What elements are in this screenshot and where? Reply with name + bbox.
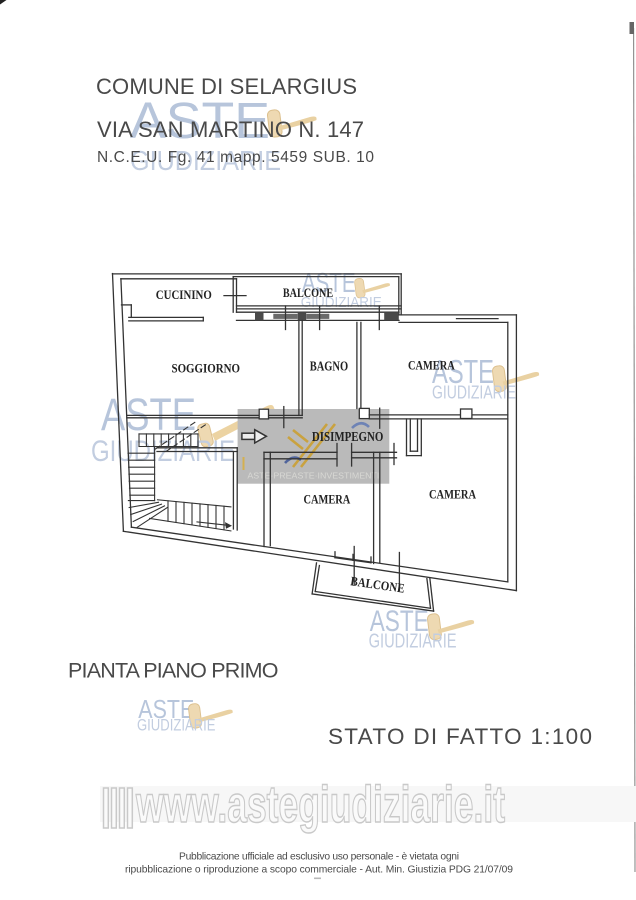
svg-text:STATO DI FATTO 1:100: STATO DI FATTO 1:100 xyxy=(328,724,592,749)
svg-text:GIUDIZIARIE: GIUDIZIARIE xyxy=(369,629,457,652)
svg-text:CAMERA: CAMERA xyxy=(408,358,455,373)
svg-text:ASTE·PREASTE·INVESTIMENTI: ASTE·PREASTE·INVESTIMENTI xyxy=(247,471,379,481)
svg-text:COMUNE DI SELARGIUS: COMUNE DI SELARGIUS xyxy=(96,74,357,99)
svg-text:GIUDIZIARIE: GIUDIZIARIE xyxy=(137,717,216,735)
svg-text:SOGGIORNO: SOGGIORNO xyxy=(172,360,241,375)
svg-text:GIUDIZIARIE: GIUDIZIARIE xyxy=(432,382,516,403)
svg-text:BALCONE: BALCONE xyxy=(350,573,406,596)
svg-text:Pubblicazione ufficiale ad esc: Pubblicazione ufficiale ad esclusivo uso… xyxy=(179,852,459,863)
svg-text:PIANTA PIANO PRIMO: PIANTA PIANO PRIMO xyxy=(68,659,279,683)
svg-text:DISIMPEGNO: DISIMPEGNO xyxy=(312,429,384,444)
svg-text:BALCONE: BALCONE xyxy=(283,286,333,300)
svg-text:ripubblicazione o riproduzione: ripubblicazione o riproduzione a scopo c… xyxy=(125,865,513,876)
svg-text:VIA SAN MARTINO N. 147: VIA SAN MARTINO N. 147 xyxy=(97,117,364,142)
svg-text:ASTE: ASTE xyxy=(101,389,196,440)
svg-text:N.C.E.U. Fg. 41 mapp. 5459: N.C.E.U. Fg. 41 mapp. 5459 SUB. 10 xyxy=(97,149,374,166)
svg-text:www.astegiudiziarie.it: www.astegiudiziarie.it xyxy=(135,776,505,834)
svg-text:CUCININO: CUCININO xyxy=(156,287,212,302)
svg-text:CAMERA: CAMERA xyxy=(304,492,351,507)
svg-text:CAMERA: CAMERA xyxy=(429,487,476,502)
svg-text:BAGNO: BAGNO xyxy=(310,358,349,373)
